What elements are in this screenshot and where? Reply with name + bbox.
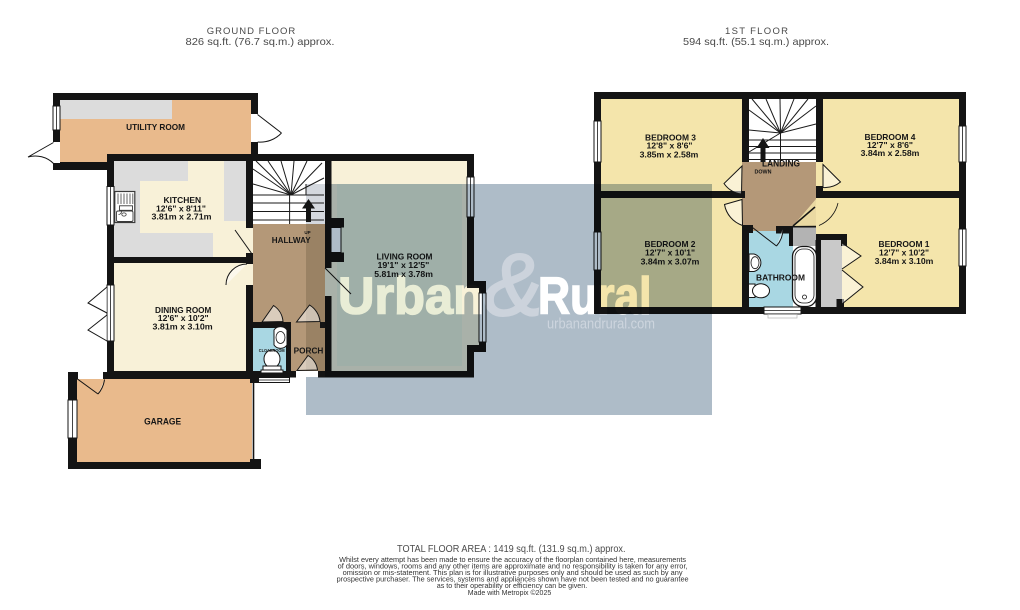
svg-text:3.84m x 2.58m: 3.84m x 2.58m bbox=[861, 149, 920, 158]
svg-text:&: & bbox=[484, 235, 543, 334]
svg-text:TOTAL FLOOR AREA : 1419 sq.ft.: TOTAL FLOOR AREA : 1419 sq.ft. (131.9 sq… bbox=[397, 544, 626, 555]
svg-text:12'8" x 8'6": 12'8" x 8'6" bbox=[647, 142, 693, 151]
svg-text:3.81m x 2.71m: 3.81m x 2.71m bbox=[152, 212, 212, 221]
svg-text:DOWN: DOWN bbox=[755, 169, 772, 175]
svg-text:CLOAKROOM: CLOAKROOM bbox=[259, 348, 285, 353]
svg-text:UP: UP bbox=[304, 230, 310, 235]
svg-text:3.81m x 3.10m: 3.81m x 3.10m bbox=[153, 323, 213, 332]
svg-text:GARAGE: GARAGE bbox=[144, 416, 181, 426]
svg-text:Made with Metropix ©2025: Made with Metropix ©2025 bbox=[468, 588, 552, 597]
svg-text:BATHROOM: BATHROOM bbox=[756, 273, 805, 283]
svg-text:UTILITY ROOM: UTILITY ROOM bbox=[126, 123, 185, 132]
svg-text:3.85m x 2.58m: 3.85m x 2.58m bbox=[640, 150, 699, 159]
svg-text:1ST FLOOR: 1ST FLOOR bbox=[725, 26, 788, 37]
svg-text:3.84m x 3.10m: 3.84m x 3.10m bbox=[875, 257, 934, 266]
svg-text:GROUND FLOOR: GROUND FLOOR bbox=[207, 26, 296, 37]
svg-text:826 sq.ft. (76.7 sq.m.) approx: 826 sq.ft. (76.7 sq.m.) approx. bbox=[186, 37, 335, 48]
svg-text:PORCH: PORCH bbox=[294, 346, 324, 356]
svg-text:Urban: Urban bbox=[338, 268, 484, 326]
svg-text:urbanandrural.com: urbanandrural.com bbox=[547, 317, 655, 333]
svg-text:LANDING: LANDING bbox=[762, 159, 800, 169]
svg-text:BEDROOM 1: BEDROOM 1 bbox=[879, 239, 930, 249]
svg-text:594 sq.ft. (55.1 sq.m.) approx: 594 sq.ft. (55.1 sq.m.) approx. bbox=[683, 37, 829, 48]
svg-text:HALLWAY: HALLWAY bbox=[272, 235, 311, 245]
